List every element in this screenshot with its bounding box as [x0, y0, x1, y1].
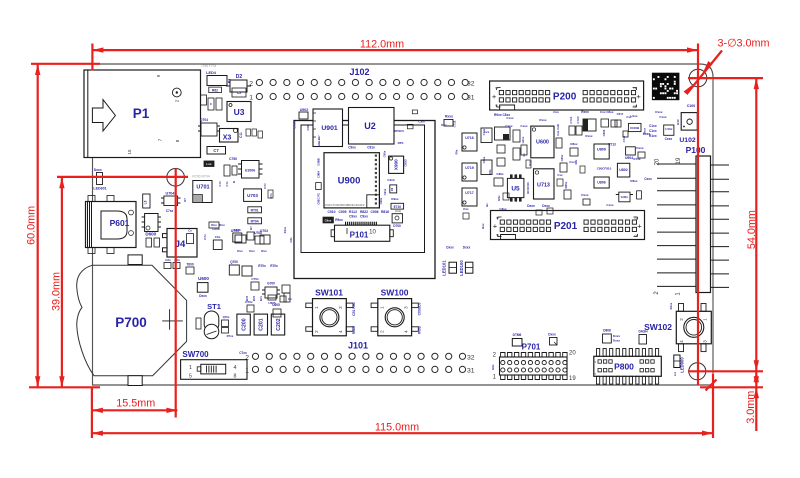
svg-text:C617: C617: [617, 112, 624, 116]
svg-text:+: +: [637, 222, 642, 231]
svg-text:Bxx: Bxx: [481, 223, 485, 229]
svg-text:60.0mm: 60.0mm: [26, 206, 38, 245]
svg-text:C80x: C80x: [496, 172, 504, 176]
svg-text:Dxx: Dxx: [249, 249, 255, 253]
svg-text:Cxx7: Cxx7: [418, 120, 426, 124]
svg-text:Cxxx: Cxxx: [505, 124, 513, 128]
svg-text:10: 10: [369, 230, 376, 236]
svg-text:SW700: SW700: [182, 350, 209, 359]
svg-text:Rxx: Rxx: [219, 223, 225, 227]
svg-text:P601: P601: [110, 218, 130, 228]
svg-text:R822: R822: [360, 210, 368, 214]
svg-text:CXXEC0: CXXEC0: [418, 302, 422, 315]
svg-text:C9BB: C9BB: [317, 158, 321, 166]
svg-text:C9x0: C9x0: [387, 178, 395, 182]
svg-text:R10: R10: [676, 119, 680, 125]
svg-text:R9x: R9x: [497, 195, 501, 201]
svg-text:C1xx: C1xx: [649, 124, 657, 128]
svg-text:L8xx: L8xx: [521, 136, 525, 143]
svg-text:R9xx: R9xx: [335, 218, 343, 222]
svg-text:T600: T600: [186, 263, 193, 267]
svg-text:4: 4: [234, 365, 237, 371]
svg-text:R: R: [232, 181, 236, 183]
svg-text:U717: U717: [465, 191, 474, 195]
svg-text:R7x: R7x: [259, 295, 263, 301]
svg-text:C201: C201: [259, 318, 265, 331]
svg-text:R9xx: R9xx: [391, 197, 399, 201]
svg-text:Dxx: Dxx: [237, 249, 243, 253]
svg-text:Cxx: Cxx: [557, 173, 563, 177]
svg-text:C9xx: C9xx: [325, 219, 332, 223]
svg-text:Cxx: Cxx: [484, 130, 490, 134]
svg-text:R9 R9 R9: R9 R9 R9: [526, 182, 530, 194]
svg-text:C90x: C90x: [379, 197, 383, 204]
svg-text:R62: R62: [212, 88, 218, 92]
svg-text:LED4: LED4: [206, 71, 217, 75]
svg-text:IT98 F7S4: IT98 F7S4: [202, 64, 217, 68]
svg-text:U3: U3: [234, 107, 245, 117]
svg-text:U900: U900: [338, 176, 361, 187]
svg-text:C9X3: C9X3: [404, 159, 408, 166]
svg-text:R9x: R9x: [488, 169, 492, 175]
svg-text:R1xx: R1xx: [649, 134, 657, 138]
svg-text:R70x: R70x: [258, 264, 266, 268]
svg-text:SW102: SW102: [644, 322, 672, 332]
svg-text:U1006: U1006: [245, 169, 256, 173]
svg-text:LED100: LED100: [459, 260, 464, 276]
svg-text:R713: R713: [608, 143, 616, 147]
svg-text:19: 19: [676, 157, 682, 164]
svg-text:Bx: Bx: [485, 203, 489, 207]
svg-text:31: 31: [467, 367, 475, 374]
svg-text:C3x: C3x: [215, 235, 221, 239]
svg-text:LED101: LED101: [442, 260, 447, 276]
svg-text:U802: U802: [619, 168, 628, 172]
svg-text:Lxx: Lxx: [206, 162, 212, 166]
svg-text:Cx: Cx: [237, 91, 242, 95]
svg-text:P800: P800: [614, 362, 634, 372]
svg-text:Cxxx: Cxxx: [665, 137, 673, 141]
svg-text:C80x: C80x: [560, 154, 564, 161]
svg-text:R112: R112: [349, 210, 357, 214]
svg-text:C11: C11: [239, 132, 243, 138]
svg-text:Cx: Cx: [188, 229, 192, 233]
svg-text:Q70x: Q70x: [223, 315, 230, 319]
svg-text:3-∅3.0mm: 3-∅3.0mm: [717, 37, 769, 49]
svg-text:15: 15: [127, 149, 132, 155]
svg-text:Dxxx: Dxxx: [548, 333, 556, 337]
svg-text:R0CE: R0CE: [352, 326, 356, 335]
svg-text:C9xx: C9xx: [349, 215, 357, 219]
svg-text:C1xx: C1xx: [649, 129, 657, 133]
svg-text:P700: P700: [115, 315, 147, 330]
svg-text:39.0mm: 39.0mm: [51, 272, 63, 311]
svg-text:U605: U605: [268, 301, 276, 305]
svg-text:CxL CxR: CxL CxR: [556, 124, 560, 136]
svg-text:G30x: G30x: [621, 195, 629, 199]
svg-text:U10x: U10x: [665, 127, 673, 131]
svg-text:Dxx: Dxx: [463, 207, 469, 211]
svg-text:F9x: F9x: [455, 149, 459, 154]
svg-text:Dxxx: Dxxx: [581, 193, 589, 197]
svg-text:xxx: xxx: [674, 371, 677, 376]
svg-text:U902: U902: [300, 108, 309, 112]
svg-text:CB1 R9C: CB1 R9C: [352, 301, 356, 315]
svg-text:C9xx: C9xx: [360, 215, 368, 219]
svg-text:20: 20: [655, 158, 661, 165]
svg-text:2: 2: [495, 87, 499, 89]
svg-text:C750: C750: [229, 157, 237, 161]
svg-text:R80x: R80x: [564, 181, 568, 188]
svg-text:C59: C59: [306, 125, 310, 131]
svg-text:C8x: C8x: [289, 237, 293, 243]
svg-text:Rxxx: Rxxx: [539, 118, 547, 122]
svg-text:5: 5: [189, 374, 192, 380]
svg-text:P1: P1: [133, 106, 150, 121]
svg-text:1: 1: [189, 365, 192, 371]
svg-text:Cxxx: Cxxx: [606, 203, 614, 207]
svg-text:1: 1: [249, 95, 253, 102]
svg-text:SW100: SW100: [381, 287, 409, 297]
svg-text:U716: U716: [465, 136, 474, 140]
svg-text:Rxx: Rxx: [441, 123, 447, 127]
svg-text:54.0mm: 54.0mm: [746, 210, 758, 249]
svg-text:Rxxx: Rxxx: [585, 134, 593, 138]
svg-text:C908: C908: [370, 210, 378, 214]
svg-text:Dxxx: Dxxx: [655, 110, 663, 114]
svg-text:U2: U2: [364, 121, 376, 131]
svg-text:P201: P201: [554, 221, 578, 232]
svg-text:U713: U713: [537, 183, 550, 189]
svg-text:P200: P200: [553, 92, 577, 103]
svg-text:Dxxx: Dxxx: [542, 204, 550, 208]
svg-text:Dxxx: Dxxx: [463, 245, 471, 249]
svg-text:U600: U600: [198, 276, 209, 281]
svg-text:Cxxx: Cxxx: [659, 115, 667, 119]
svg-text:D9: D9: [390, 187, 394, 191]
svg-text:RT04: RT04: [251, 220, 259, 224]
svg-text:C7xx: C7xx: [622, 135, 626, 142]
svg-text:Dxxx: Dxxx: [613, 334, 621, 338]
svg-text:X3: X3: [223, 135, 232, 142]
svg-text:U704: U704: [165, 192, 175, 196]
svg-text:Cxxx: Cxxx: [520, 124, 528, 128]
svg-text:CT0x: CT0x: [251, 277, 259, 281]
svg-text:X900: X900: [394, 159, 399, 170]
svg-text:19: 19: [569, 376, 576, 382]
svg-text:R816: R816: [381, 210, 389, 214]
svg-text:DTM6: DTM6: [513, 333, 522, 337]
svg-text:U701: U701: [196, 185, 209, 191]
svg-text:2: 2: [633, 105, 637, 107]
svg-text:G700: G700: [267, 282, 275, 286]
svg-text:U102: U102: [679, 137, 695, 144]
svg-text:D700: D700: [393, 224, 401, 228]
svg-text:J101: J101: [348, 341, 368, 351]
svg-text:R7xx: R7xx: [227, 334, 234, 338]
svg-text:C9B4: C9B4: [317, 170, 321, 178]
svg-text:C80CF810: C80CF810: [597, 167, 612, 171]
svg-text:C2x: C2x: [165, 258, 171, 262]
svg-text:R76: R76: [252, 295, 256, 301]
svg-text:RP4: RP4: [398, 141, 404, 145]
svg-text:C91C7C9C80C9BC9C4C0F2: C91C7C9C80C9BC9C4C0F2: [325, 203, 365, 207]
svg-text:C90x: C90x: [383, 150, 387, 157]
svg-text:Q700: Q700: [230, 260, 238, 264]
svg-text:R1xx: R1xx: [669, 302, 673, 309]
svg-text:Rxx: Rxx: [261, 249, 267, 253]
svg-text:C9xx: C9xx: [348, 146, 356, 150]
svg-text:U708: U708: [254, 231, 262, 235]
svg-text:J102: J102: [349, 67, 369, 77]
svg-text:L6: L6: [144, 200, 148, 204]
svg-text:R76: R76: [245, 295, 249, 301]
svg-text:E9EL9E7: E9EL9E7: [317, 135, 321, 147]
svg-text:C91x: C91x: [383, 188, 387, 195]
svg-text:15.5mm: 15.5mm: [116, 397, 155, 409]
svg-text:U5: U5: [511, 186, 520, 193]
svg-text:C7x: C7x: [225, 181, 229, 187]
svg-text:C7xx: C7xx: [166, 209, 174, 213]
svg-text:Dxxx: Dxxx: [613, 339, 621, 343]
svg-text:C7: C7: [213, 148, 219, 153]
svg-text:20: 20: [569, 351, 576, 357]
svg-text:LED900: LED900: [680, 357, 685, 373]
svg-text:R8xx: R8xx: [630, 179, 638, 183]
svg-text:Dx: Dx: [288, 297, 292, 301]
svg-text:D808: D808: [603, 329, 611, 333]
svg-text:LED601: LED601: [93, 187, 106, 191]
svg-text:Cxxx: Cxxx: [644, 177, 652, 181]
svg-text:U904: U904: [625, 156, 633, 160]
svg-text:ST1: ST1: [207, 302, 221, 311]
svg-text:C91x: C91x: [367, 146, 375, 150]
svg-text:+: +: [493, 222, 498, 231]
svg-text:C708: C708: [233, 228, 241, 232]
svg-text:C910: C910: [327, 210, 335, 214]
svg-text:R7xx: R7xx: [633, 157, 641, 161]
svg-text:32: 32: [467, 81, 475, 88]
svg-text:R8xx: R8xx: [570, 142, 578, 146]
svg-text:U800: U800: [597, 148, 606, 152]
svg-text:Cxxx: Cxxx: [506, 116, 514, 120]
svg-text:2: 2: [634, 218, 638, 220]
svg-text:Dxxx: Dxxx: [527, 204, 535, 208]
svg-text:R8x: R8x: [574, 159, 578, 164]
svg-text:Cxx: Cxx: [626, 115, 632, 119]
svg-text:P100: P100: [686, 145, 706, 155]
svg-text:2: 2: [634, 235, 638, 237]
svg-text:Bxxx: Bxxx: [643, 127, 647, 134]
svg-text:C200: C200: [241, 318, 247, 331]
svg-text:RP9C0: RP9C0: [394, 129, 404, 133]
svg-text:C909: C909: [338, 210, 346, 214]
svg-text:+: +: [636, 92, 641, 101]
svg-text:U100B: U100B: [630, 126, 640, 130]
svg-text:C74: C74: [218, 181, 222, 187]
svg-text:P701: P701: [522, 343, 541, 352]
svg-text:115.0mm: 115.0mm: [375, 421, 419, 433]
svg-text:QT04: QT04: [200, 118, 208, 122]
svg-text:Dxxx: Dxxx: [636, 146, 644, 150]
svg-text:R700 R704: R700 R704: [192, 175, 209, 179]
svg-text:Rxxx: Rxxx: [445, 115, 453, 119]
svg-text:C100: C100: [687, 104, 696, 108]
svg-text:C7C0: C7C0: [576, 116, 580, 124]
svg-text:U719: U719: [465, 166, 474, 170]
svg-text:Rxx: Rxx: [528, 160, 532, 166]
svg-text:C7C1: C7C1: [569, 116, 573, 124]
svg-text:Dxxx: Dxxx: [94, 168, 102, 172]
svg-text:3.0mm: 3.0mm: [745, 391, 757, 424]
svg-text:U901: U901: [321, 125, 337, 132]
svg-text:R7: R7: [183, 198, 187, 202]
svg-text:C7x: C7x: [263, 183, 267, 189]
svg-text:R09D: R09D: [418, 325, 422, 334]
svg-text:C806: C806: [602, 129, 606, 136]
svg-text:C90M: C90M: [293, 121, 297, 129]
svg-text:C7x: C7x: [203, 234, 207, 240]
svg-text:2: 2: [495, 105, 499, 107]
svg-text:P101: P101: [350, 231, 369, 240]
svg-text:C7xx: C7xx: [239, 351, 247, 355]
svg-text:Cx: Cx: [522, 153, 526, 157]
svg-text:Dxxx: Dxxx: [446, 245, 454, 249]
svg-text:2: 2: [495, 234, 499, 236]
svg-text:8: 8: [234, 374, 237, 380]
svg-text:U703: U703: [247, 193, 258, 198]
svg-text:R6x: R6x: [491, 364, 495, 370]
svg-text:DASH: DASH: [638, 330, 648, 334]
svg-text:F2xx: F2xx: [283, 226, 287, 233]
svg-text:+: +: [492, 92, 497, 101]
svg-text:32: 32: [467, 354, 475, 361]
svg-text:2: 2: [633, 88, 637, 90]
svg-text:U806: U806: [597, 181, 606, 185]
svg-text:R70x: R70x: [270, 264, 278, 268]
svg-text:C712: C712: [453, 120, 457, 127]
svg-text:31: 31: [467, 95, 475, 102]
svg-text:RT01: RT01: [251, 209, 259, 213]
svg-text:2: 2: [495, 217, 499, 219]
svg-text:C9EC F2: C9EC F2: [317, 193, 321, 205]
svg-text:D2: D2: [236, 74, 243, 80]
svg-text:U600: U600: [536, 140, 549, 146]
svg-text:R7: R7: [249, 226, 253, 230]
svg-text:Dxxx: Dxxx: [199, 294, 207, 298]
svg-text:(0.0): (0.0): [395, 209, 401, 213]
svg-text:SW101: SW101: [315, 287, 343, 297]
svg-text:C202: C202: [276, 318, 282, 331]
svg-text:D600: D600: [145, 232, 156, 237]
svg-text:112.0mm: 112.0mm: [360, 38, 404, 50]
